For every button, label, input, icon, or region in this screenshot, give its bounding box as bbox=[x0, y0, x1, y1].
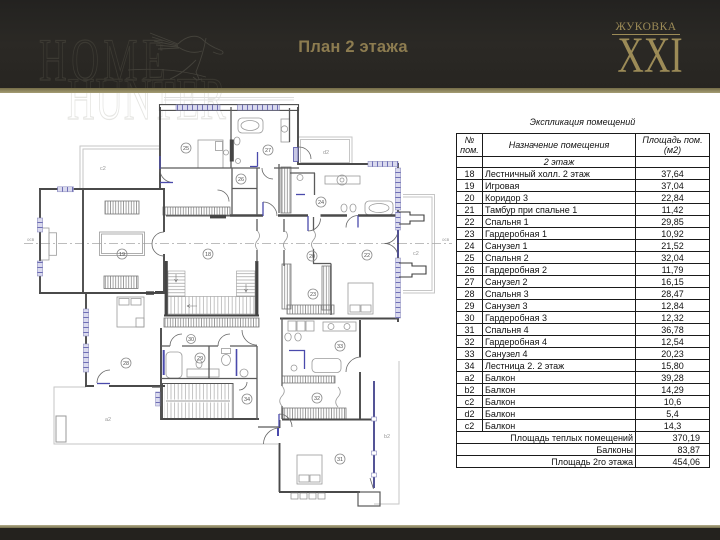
svg-text:24: 24 bbox=[318, 200, 324, 206]
svg-text:29: 29 bbox=[197, 356, 203, 362]
svg-text:33: 33 bbox=[337, 344, 343, 350]
svg-text:34: 34 bbox=[244, 397, 250, 403]
svg-text:d2: d2 bbox=[323, 150, 329, 156]
svg-text:23: 23 bbox=[310, 292, 316, 298]
svg-text:31: 31 bbox=[337, 457, 343, 463]
svg-text:26: 26 bbox=[238, 177, 244, 183]
svg-text:28: 28 bbox=[123, 361, 129, 367]
svg-text:20: 20 bbox=[309, 254, 315, 260]
svg-text:25: 25 bbox=[183, 146, 189, 152]
svg-text:32: 32 bbox=[314, 396, 320, 402]
svg-text:c2: c2 bbox=[100, 166, 106, 172]
svg-text:b2: b2 bbox=[384, 434, 390, 440]
svg-text:22: 22 bbox=[364, 253, 370, 259]
svg-text:18: 18 bbox=[205, 252, 211, 258]
svg-text:19: 19 bbox=[119, 252, 125, 258]
svg-text:осв: осв bbox=[27, 237, 35, 242]
svg-text:осв: осв bbox=[442, 237, 450, 242]
svg-text:27: 27 bbox=[265, 148, 271, 154]
svg-text:30: 30 bbox=[188, 337, 194, 343]
svg-text:c2: c2 bbox=[413, 251, 419, 257]
svg-text:a2: a2 bbox=[105, 417, 111, 423]
